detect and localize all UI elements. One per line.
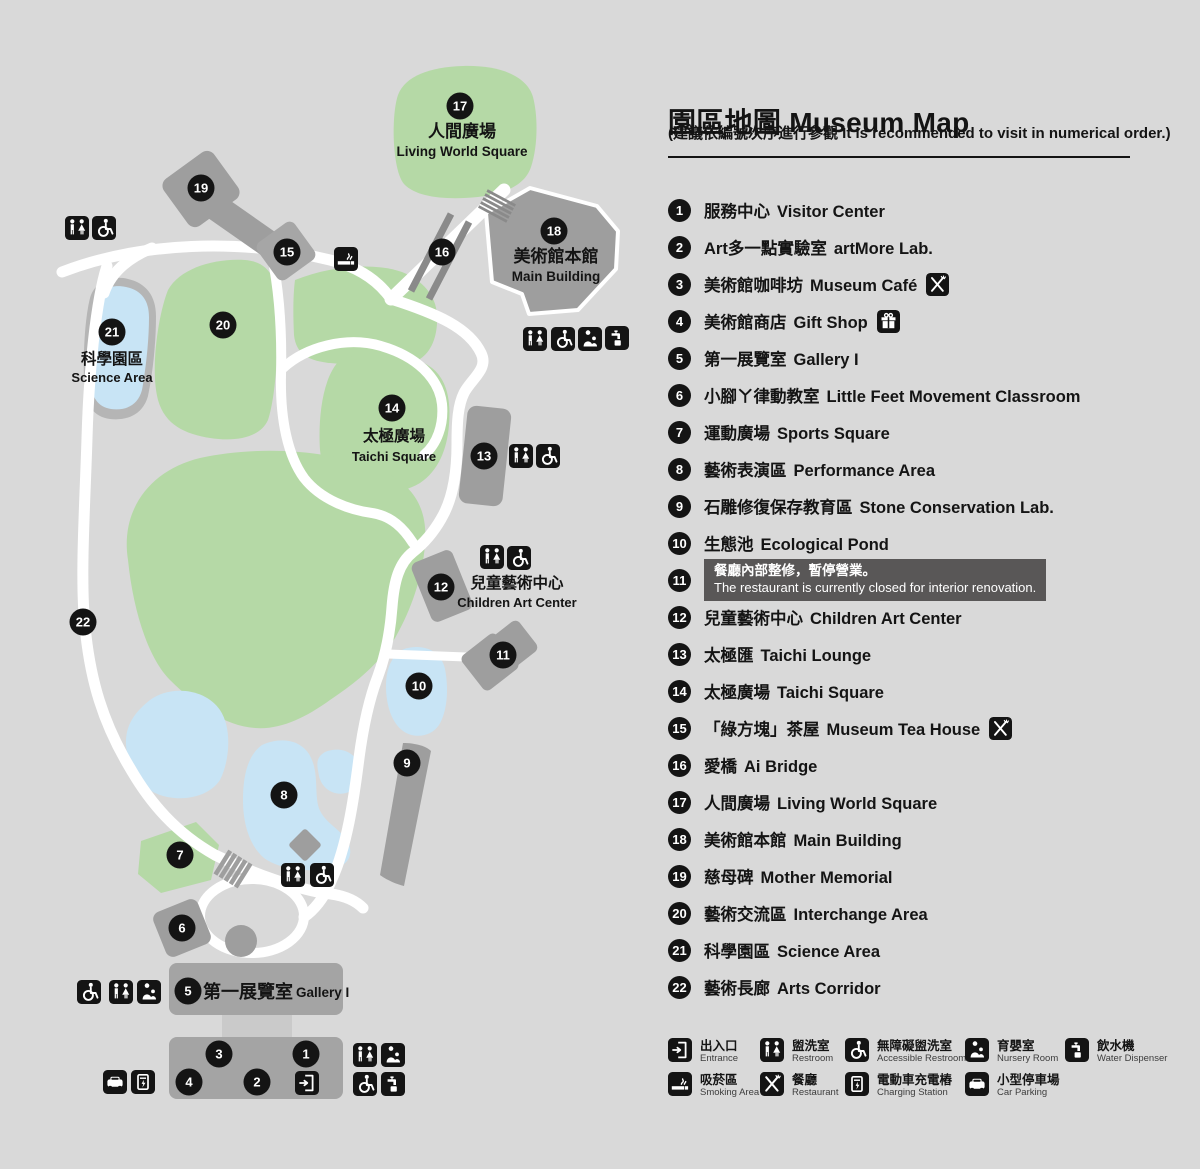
legend-number-badge: 7 (668, 421, 691, 444)
map-marker-number: 4 (185, 1075, 193, 1090)
legend-item-label: 人間廣場Living World Square (704, 790, 937, 814)
legend-number-badge: 9 (668, 495, 691, 518)
facility-accessible: 無障礙盥洗室Accessible Restroom (845, 1038, 966, 1065)
legend-label-zh: 美術館商店 (704, 314, 787, 332)
legend-label-zh: 藝術交流區 (704, 906, 787, 924)
map-accessible-icon (92, 216, 116, 240)
map-marker-2: 2 (244, 1069, 271, 1096)
map-marker-17: 17 (447, 93, 474, 120)
nursery-icon (965, 1038, 989, 1062)
legend-label-zh: 慈母碑 (704, 869, 754, 887)
legend-item-21: 21科學園區Science Area (668, 932, 880, 968)
legend-number-badge: 20 (668, 902, 691, 925)
facility-charging: 電動車充電樁Charging Station (845, 1072, 952, 1099)
facility-label-zh: 育嬰室 (997, 1038, 1058, 1053)
legend-number-badge: 2 (668, 236, 691, 259)
restroom-icon (760, 1038, 784, 1062)
legend-label-zh: 「綠方塊」茶屋 (704, 721, 820, 739)
map-accessible-icon (551, 327, 575, 351)
facility-restroom: 盥洗室Restroom (760, 1038, 833, 1065)
legend-item-label: 科學園區Science Area (704, 938, 880, 962)
legend-item-2: 2Art多一點實驗室artMore Lab. (668, 229, 933, 265)
map-marker-number: 10 (412, 679, 426, 694)
legend-number-badge: 5 (668, 347, 691, 370)
map-restroom-icon (509, 444, 533, 468)
map-smoking-icon (334, 247, 358, 271)
legend-item-18: 18美術館本館Main Building (668, 821, 902, 857)
map-marker-8: 8 (271, 782, 298, 809)
map-water-icon (381, 1072, 405, 1096)
map-parking-icon (103, 1070, 127, 1094)
map-label: Main Building (512, 269, 601, 284)
facility-label-zh: 飲水機 (1097, 1038, 1167, 1053)
legend-label-en: Arts Corridor (777, 980, 881, 998)
map-marker-20: 20 (210, 312, 237, 339)
legend-item-label: 第一展覽室Gallery I (704, 346, 859, 370)
map-marker-14: 14 (379, 395, 406, 422)
facility-label: 電動車充電樁Charging Station (877, 1072, 952, 1099)
map-nursery-icon (578, 327, 602, 351)
entrance-icon (668, 1038, 692, 1062)
map-marker-number: 18 (547, 224, 561, 239)
entrance-roundabout (225, 925, 257, 957)
map-marker-number: 12 (434, 580, 448, 595)
legend-item-label: 藝術長廊Arts Corridor (704, 975, 881, 999)
legend-label-zh: 愛橋 (704, 758, 737, 776)
legend-label-en: Children Art Center (810, 610, 962, 628)
restaurant-icon (926, 273, 949, 296)
legend-item-label: 愛橋Ai Bridge (704, 753, 817, 777)
facility-label: 吸菸區Smoking Area (700, 1072, 759, 1099)
legend-item-9: 9石雕修復保存教育區Stone Conservation Lab. (668, 488, 1054, 524)
gift-icon (877, 310, 900, 333)
legend-item-label: 運動廣場Sports Square (704, 420, 890, 444)
accessible-icon (845, 1038, 869, 1062)
map-accessible-icon (536, 444, 560, 468)
facility-label-en: Accessible Restroom (877, 1053, 966, 1064)
facility-label-en: Car Parking (997, 1087, 1060, 1098)
map-marker-19: 19 (188, 175, 215, 202)
facility-label: 小型停車場Car Parking (997, 1072, 1060, 1099)
legend-item-10: 10生態池Ecological Pond (668, 525, 889, 561)
map-restroom-icon (353, 1043, 377, 1067)
map-marker-5: 5 (175, 978, 202, 1005)
legend-label-zh: 服務中心 (704, 203, 770, 221)
gallery-connector (222, 1015, 292, 1039)
legend-label-zh: 石雕修復保存教育區 (704, 499, 853, 517)
legend-label-en: Main Building (794, 832, 902, 850)
legend-number-badge: 19 (668, 865, 691, 888)
map-marker-number: 19 (194, 181, 208, 196)
legend-number-badge: 10 (668, 532, 691, 555)
legend-item-label: 服務中心Visitor Center (704, 198, 885, 222)
legend-label-en: Taichi Lounge (761, 647, 872, 665)
legend-number-badge: 3 (668, 273, 691, 296)
legend-item-5: 5第一展覽室Gallery I (668, 340, 859, 376)
legend-label-zh: 美術館本館 (704, 832, 787, 850)
legend-number-badge: 4 (668, 310, 691, 333)
legend-item-label: 美術館商店Gift Shop (704, 309, 868, 333)
map-marker-6: 6 (169, 915, 196, 942)
map-marker-21: 21 (99, 319, 126, 346)
legend-item-label: 慈母碑Mother Memorial (704, 864, 893, 888)
legend-number-badge: 16 (668, 754, 691, 777)
map-marker-13: 13 (471, 443, 498, 470)
legend-label-en: Living World Square (777, 795, 937, 813)
legend-label-en: Taichi Square (777, 684, 884, 702)
water-icon (1065, 1038, 1089, 1062)
facility-parking: 小型停車場Car Parking (965, 1072, 1060, 1099)
map-water-icon (605, 326, 629, 350)
map-label: 第一展覽室 (203, 981, 293, 1002)
legend-item-label: Art多一點實驗室artMore Lab. (704, 235, 933, 259)
legend-item-13: 13太極匯Taichi Lounge (668, 636, 871, 672)
map-marker-4: 4 (176, 1069, 203, 1096)
map-label: Taichi Square (352, 449, 436, 464)
facility-label-zh: 小型停車場 (997, 1072, 1060, 1087)
legend-item-1: 1服務中心Visitor Center (668, 192, 885, 228)
facility-label-en: Water Dispenser (1097, 1053, 1167, 1064)
legend-item-22: 22藝術長廊Arts Corridor (668, 969, 881, 1005)
legend-label-en: Museum Café (810, 277, 917, 295)
legend-item-3: 3美術館咖啡坊Museum Café (668, 266, 949, 302)
smoking-icon (668, 1072, 692, 1096)
map-marker-number: 3 (215, 1047, 222, 1062)
facility-label-en: Charging Station (877, 1087, 952, 1098)
parking-icon (965, 1072, 989, 1096)
map-restroom-icon (109, 980, 133, 1004)
legend-item-7: 7運動廣場Sports Square (668, 414, 890, 450)
legend-label-zh: 科學園區 (704, 943, 770, 961)
interchange-area (155, 260, 278, 440)
legend-label-en: Performance Area (794, 462, 936, 480)
map-marker-number: 2 (253, 1075, 260, 1090)
map-marker-number: 15 (280, 245, 294, 260)
legend-number-badge: 15 (668, 717, 691, 740)
map-entrance-icon (295, 1071, 319, 1095)
legend-label-en: Science Area (777, 943, 880, 961)
legend-label-en: Stone Conservation Lab. (860, 499, 1054, 517)
facility-nursery: 育嬰室Nursery Room (965, 1038, 1058, 1065)
facility-label: 育嬰室Nursery Room (997, 1038, 1058, 1065)
legend-item-label: 小腳ㄚ律動教室Little Feet Movement Classroom (704, 383, 1080, 407)
legend-item-19: 19慈母碑Mother Memorial (668, 858, 893, 894)
facility-label: 盥洗室Restroom (792, 1038, 833, 1065)
map-nursery-icon (381, 1043, 405, 1067)
legend-label-zh: 美術館咖啡坊 (704, 277, 803, 295)
closure-notice: 餐廳內部整修，暫停營業。The restaurant is currently … (704, 559, 1046, 601)
legend-item-label: 藝術表演區Performance Area (704, 457, 935, 481)
facility-label-en: Entrance (700, 1053, 738, 1064)
facility-label-en: Nursery Room (997, 1053, 1058, 1064)
legend-item-label: 藝術交流區Interchange Area (704, 901, 928, 925)
facility-entrance: 出入口Entrance (668, 1038, 738, 1065)
facility-label-zh: 無障礙盥洗室 (877, 1038, 966, 1053)
legend-label-zh: 第一展覽室 (704, 351, 787, 369)
legend-label-en: Sports Square (777, 425, 890, 443)
legend-label-en: Ai Bridge (744, 758, 817, 776)
restaurant-icon (760, 1072, 784, 1096)
map-restroom-icon (65, 216, 89, 240)
map-marker-number: 5 (184, 984, 191, 999)
legend-label-zh: 藝術長廊 (704, 980, 770, 998)
facility-label-en: Smoking Area (700, 1087, 759, 1098)
map-label: 太極廣場 (363, 426, 426, 445)
map-label: Science Area (71, 370, 153, 385)
legend-number-badge: 14 (668, 680, 691, 703)
legend-item-11: 11餐廳內部整修，暫停營業。The restaurant is currentl… (668, 562, 1046, 598)
map-marker-number: 6 (178, 921, 185, 936)
legend-label-zh: 兒童藝術中心 (704, 610, 803, 628)
map-marker-number: 13 (477, 449, 491, 464)
museum-map-page: 12345678910111213141516171819202122 人間廣場… (0, 0, 1200, 1169)
map-accessible-icon (310, 863, 334, 887)
map-restroom-icon (281, 863, 305, 887)
charging-icon (845, 1072, 869, 1096)
legend-number-badge: 13 (668, 643, 691, 666)
legend-label-zh: 太極廣場 (704, 684, 770, 702)
closure-notice-en: The restaurant is currently closed for i… (714, 580, 1036, 596)
legend-number-badge: 21 (668, 939, 691, 962)
legend-number-badge: 11 (668, 569, 691, 592)
legend-label-zh: Art多一點實驗室 (704, 240, 827, 258)
legend-item-8: 8藝術表演區Performance Area (668, 451, 935, 487)
facility-label: 出入口Entrance (700, 1038, 738, 1065)
legend-label-zh: 人間廣場 (704, 795, 770, 813)
legend-item-17: 17人間廣場Living World Square (668, 784, 937, 820)
legend-item-15: 15「綠方塊」茶屋Museum Tea House (668, 710, 1012, 746)
legend-number-badge: 6 (668, 384, 691, 407)
legend-label-en: Interchange Area (794, 906, 928, 924)
map-marker-18: 18 (541, 218, 568, 245)
legend-number-badge: 18 (668, 828, 691, 851)
legend-item-14: 14太極廣場Taichi Square (668, 673, 884, 709)
facility-label-zh: 吸菸區 (700, 1072, 759, 1087)
map-marker-number: 17 (453, 99, 467, 114)
facility-label-en: Restroom (792, 1053, 833, 1064)
map-label: Gallery I (296, 985, 349, 1000)
map-marker-number: 16 (435, 245, 449, 260)
map-label: 人間廣場 (428, 121, 496, 141)
legend-item-label: 太極廣場Taichi Square (704, 679, 884, 703)
map-marker-number: 9 (403, 756, 410, 771)
closure-notice-zh: 餐廳內部整修，暫停營業。 (714, 562, 1036, 580)
legend-number-badge: 1 (668, 199, 691, 222)
facility-label-zh: 出入口 (700, 1038, 738, 1053)
legend-item-label: 兒童藝術中心Children Art Center (704, 605, 962, 629)
legend-list: 1服務中心Visitor Center2Art多一點實驗室artMore Lab… (668, 0, 1168, 1030)
legend-item-label: 「綠方塊」茶屋Museum Tea House (704, 716, 980, 740)
legend-label-zh: 藝術表演區 (704, 462, 787, 480)
legend-label-zh: 運動廣場 (704, 425, 770, 443)
facility-label: 飲水機Water Dispenser (1097, 1038, 1167, 1065)
map-marker-15: 15 (274, 239, 301, 266)
legend-label-zh: 太極匯 (704, 647, 754, 665)
map-marker-number: 1 (302, 1047, 309, 1062)
map-marker-number: 14 (385, 401, 400, 416)
facility-label-zh: 電動車充電樁 (877, 1072, 952, 1087)
legend-item-16: 16愛橋Ai Bridge (668, 747, 817, 783)
facility-label-zh: 餐廳 (792, 1072, 838, 1087)
restaurant-icon (989, 717, 1012, 740)
legend-item-6: 6小腳ㄚ律動教室Little Feet Movement Classroom (668, 377, 1080, 413)
map-marker-22: 22 (70, 609, 97, 636)
map-label: 美術館本館 (514, 246, 599, 266)
legend-item-4: 4美術館商店Gift Shop (668, 303, 900, 339)
facility-smoking: 吸菸區Smoking Area (668, 1072, 759, 1099)
map-restroom-icon (480, 545, 504, 569)
map-nursery-icon (137, 980, 161, 1004)
legend-number-badge: 8 (668, 458, 691, 481)
legend-label-en: Ecological Pond (761, 536, 889, 554)
legend-item-20: 20藝術交流區Interchange Area (668, 895, 928, 931)
lab-access-road (388, 654, 466, 657)
legend-item-label: 美術館咖啡坊Museum Café (704, 272, 917, 296)
legend-label-en: Little Feet Movement Classroom (827, 388, 1081, 406)
legend-number-badge: 12 (668, 606, 691, 629)
map-marker-3: 3 (206, 1041, 233, 1068)
legend-item-label: 美術館本館Main Building (704, 827, 902, 851)
map-marker-number: 8 (280, 788, 287, 803)
legend-item-label: 生態池Ecological Pond (704, 531, 889, 555)
legend-label-en: Mother Memorial (761, 869, 893, 887)
facility-label: 餐廳Restaurant (792, 1072, 838, 1099)
map-accessible-icon (507, 546, 531, 570)
map-marker-number: 7 (176, 848, 183, 863)
map-marker-11: 11 (490, 642, 517, 669)
map-charging-icon (131, 1070, 155, 1094)
map-label: 科學園區 (81, 349, 143, 368)
facility-water: 飲水機Water Dispenser (1065, 1038, 1167, 1065)
legend-item-label: 太極匯Taichi Lounge (704, 642, 871, 666)
map-marker-7: 7 (167, 842, 194, 869)
facility-label-zh: 盥洗室 (792, 1038, 833, 1053)
map-marker-16: 16 (429, 239, 456, 266)
map-marker-number: 21 (105, 325, 119, 340)
map-marker-9: 9 (394, 750, 421, 777)
central-hill-area (127, 451, 426, 728)
legend-label-en: Gift Shop (794, 314, 868, 332)
map-marker-number: 22 (76, 615, 90, 630)
legend-label-en: Museum Tea House (827, 721, 981, 739)
map-accessible-icon (353, 1072, 377, 1096)
legend-label-en: Gallery I (794, 351, 859, 369)
map-marker-number: 11 (496, 648, 510, 663)
map-marker-number: 20 (216, 318, 230, 333)
map-restroom-icon (523, 327, 547, 351)
map-marker-10: 10 (406, 673, 433, 700)
legend-label-en: artMore Lab. (834, 240, 933, 258)
facility-restaurant: 餐廳Restaurant (760, 1072, 838, 1099)
map-accessible-icon (77, 980, 101, 1004)
map-marker-12: 12 (428, 574, 455, 601)
legend-label-zh: 生態池 (704, 536, 754, 554)
legend-label-zh: 小腳ㄚ律動教室 (704, 388, 820, 406)
facility-label-en: Restaurant (792, 1087, 838, 1098)
legend-item-12: 12兒童藝術中心Children Art Center (668, 599, 962, 635)
legend-item-label: 石雕修復保存教育區Stone Conservation Lab. (704, 494, 1054, 518)
legend-number-badge: 22 (668, 976, 691, 999)
facility-label: 無障礙盥洗室Accessible Restroom (877, 1038, 966, 1065)
map-label: Living World Square (396, 144, 528, 159)
map-label: Children Art Center (457, 595, 576, 610)
map-marker-1: 1 (293, 1041, 320, 1068)
legend-number-badge: 17 (668, 791, 691, 814)
legend-label-en: Visitor Center (777, 203, 885, 221)
map-label: 兒童藝術中心 (470, 573, 564, 592)
